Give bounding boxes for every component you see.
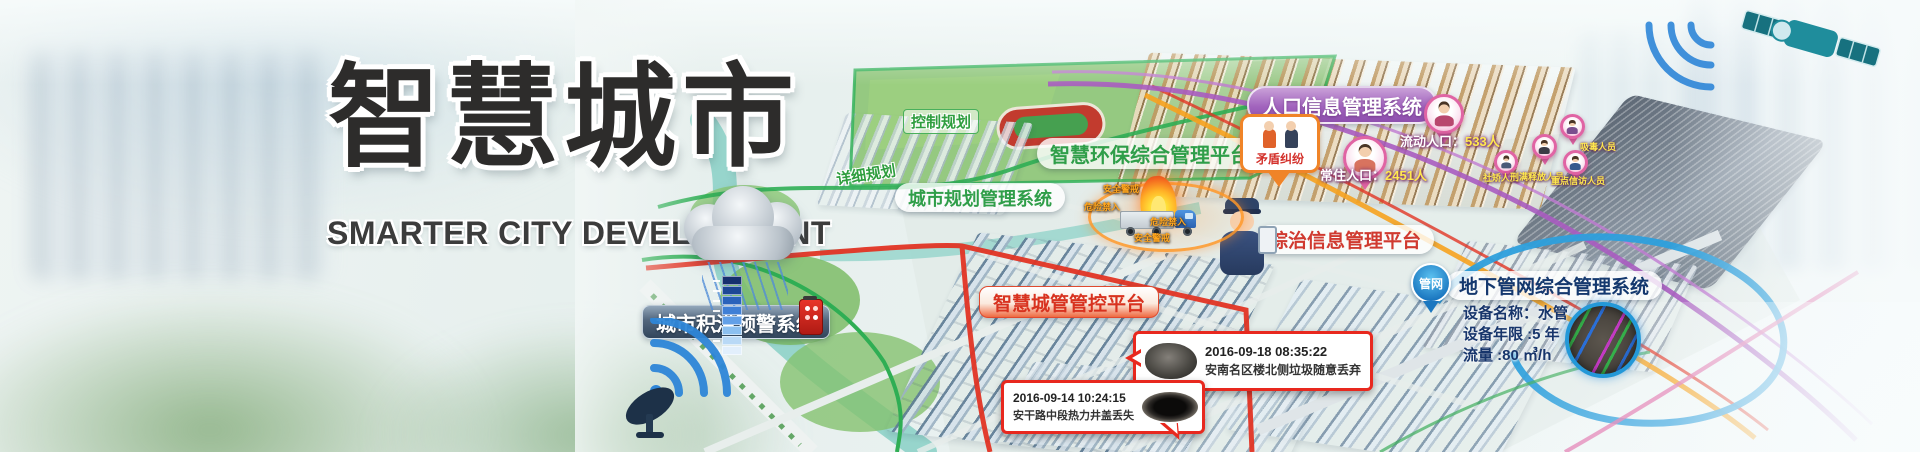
blurred-trees-left (0, 290, 490, 452)
blurred-skyline-right-2 (1580, 30, 1770, 280)
tag-control-plan: 控制规划 (903, 109, 979, 134)
dispute-label: 矛盾纠纷 (1256, 150, 1304, 167)
incident-callout-manhole[interactable]: 2016-09-14 10:24:15 安干路中段热力井盖丢失 (1001, 380, 1205, 434)
pipe-info-age: 设备年限 :5 年 (1463, 324, 1568, 345)
incident-time-2: 2016-09-14 10:24:15 (1013, 391, 1134, 407)
group-label-4: 重点信访人员 (1551, 174, 1605, 187)
floating-population-text: 流动人口： (1400, 134, 1465, 149)
pipe-network-pin-label: 管网 (1411, 263, 1451, 303)
pipe-info-flow: 流量 :80 ㎥/h (1463, 345, 1568, 366)
dispute-figures (1263, 129, 1298, 148)
hazard-tag-warn-top: 安全警戒 (1103, 182, 1139, 195)
smart-city-banner: 智慧城市 SMARTER CITY DEVELOPMENT 城市规划管理系统 智… (0, 0, 1920, 452)
page-title: 智慧城市 (328, 52, 800, 184)
group-pin-2 (1532, 134, 1557, 170)
garbage-photo (1145, 343, 1197, 379)
incident-desc-2: 安干路中段热力井盖丢失 (1013, 407, 1134, 423)
pipe-info-panel: 设备名称：水管 设备年限 :5 年 流量 :80 ㎥/h (1463, 303, 1568, 366)
hazard-tag-no-entry-left: 危险禁入 (1084, 200, 1120, 213)
dispute-pin-tail (1268, 172, 1290, 198)
label-governance-platform[interactable]: 综治信息管理平台 (1256, 225, 1434, 254)
label-city-management-platform[interactable]: 智慧城管管控平台 (979, 286, 1159, 318)
hazard-tag-no-entry-right: 危险禁入 (1150, 215, 1186, 228)
fog-top (0, 0, 1920, 85)
city-map-terrain (0, 0, 1920, 452)
pipe-info-name: 设备名称：水管 (1463, 303, 1568, 324)
satellite-icon (1596, 0, 1916, 130)
incident-desc-1: 安南名区楼北侧垃圾随意丢弃 (1205, 361, 1361, 378)
floating-population-value: 533人 (1465, 134, 1500, 149)
label-urban-planning-system[interactable]: 城市规划管理系统 (895, 183, 1065, 212)
officer-phone (1258, 226, 1277, 254)
label-pipe-network-system[interactable]: 地下管网综合管理系统 (1446, 271, 1662, 300)
rain-legend (713, 276, 742, 355)
dispute-pin: 矛盾纠纷 (1240, 114, 1318, 198)
manhole-photo (1142, 392, 1198, 422)
blurred-skyline-left (30, 50, 330, 280)
incident-time-1: 2016-09-18 08:35:22 (1205, 344, 1361, 361)
floating-population-label: 流动人口：533人 (1400, 131, 1500, 150)
resident-population-text: 常住人口： (1320, 168, 1385, 183)
flood-alarm-device-icon (799, 299, 823, 335)
blurred-skyline-right (1688, 0, 1920, 270)
resident-population-value: 2451人 (1385, 168, 1427, 183)
rain-cloud-icon (686, 186, 802, 272)
roads-and-routes (0, 0, 1920, 452)
fog-right (1670, 0, 1920, 452)
resident-population-label: 常住人口：2451人 (1320, 165, 1427, 184)
pipe-magnifier-view (1565, 302, 1641, 378)
label-environment-platform[interactable]: 智慧环保综合管理平台 (1037, 138, 1263, 169)
hazard-tag-warn-bottom: 安全警戒 (1134, 231, 1170, 244)
pipe-network-pin: 管网 (1410, 263, 1452, 321)
tag-detail-plan: 详细规划 (835, 159, 898, 189)
